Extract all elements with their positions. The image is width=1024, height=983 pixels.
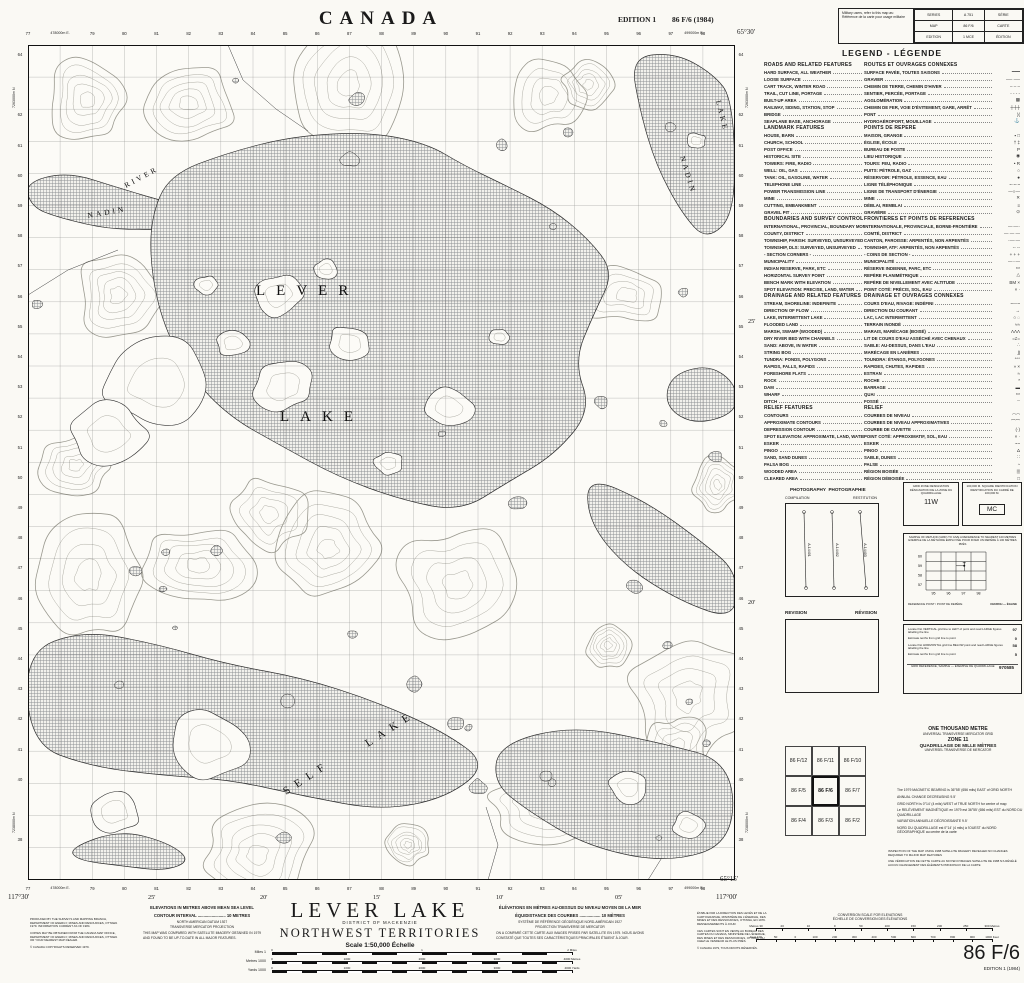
edge-label: 84	[251, 31, 256, 36]
square-id-value: MC	[979, 504, 1005, 515]
elevation-notes-en: ELEVATIONS IN METRES ABOVE MEAN SEA LEVE…	[143, 905, 261, 940]
legend-row: BRIDGEPONT)(	[764, 110, 1020, 117]
legend-symbol: Δ	[994, 448, 1020, 453]
adjacent-sheet-cell: 86 F/4	[785, 806, 812, 836]
edge-label: 05'	[615, 894, 622, 901]
legend-symbol: ∷	[994, 454, 1020, 460]
map-name-label: LEVER	[256, 283, 359, 299]
legend-symbol: -- --	[994, 245, 1020, 250]
territory-name: NORTHWEST TERRITORIES	[260, 926, 500, 941]
legend-symbol: →	[994, 308, 1020, 313]
edge-label: 81	[154, 31, 159, 36]
legend-symbol: ≈	[994, 371, 1020, 376]
edge-label: 82	[186, 31, 191, 36]
legend-row: PALSA BOGPALSE◔	[764, 460, 1020, 467]
legend-symbol: °°°	[994, 357, 1020, 362]
edge-label: 89	[411, 886, 416, 891]
legend-symbol: ∴	[994, 342, 1020, 348]
edge-label: 94	[572, 31, 577, 36]
grid-instructions: Locate first VERTICAL grid line to LEFT …	[904, 625, 1021, 663]
edge-label: 57	[18, 263, 23, 268]
adjacent-sheet-cell: 86 F/12	[785, 746, 812, 776]
legend-symbol: ·—·—	[994, 238, 1020, 243]
legend-row: DIRECTION OF FLOWDIRECTION DU COURANT→	[764, 306, 1020, 313]
legend-row: CHURCH, SCHOOLÉGLISE, ÉCOLE† ‡	[764, 138, 1020, 145]
legend-row: TANK: OIL, GASOLINE, WATERRÉSERVOIR: PÉT…	[764, 173, 1020, 180]
legend-title: LEGEND - LÉGENDE	[764, 48, 1020, 58]
legend-symbol: × ·	[994, 287, 1020, 292]
edge-label: 54	[18, 354, 23, 359]
legend-row: COUNTY, DISTRICTCOMTÉ, DISTRICT— — —	[764, 229, 1020, 236]
edge-label: 85	[283, 31, 288, 36]
military-note-fr: Référence de la carte pour usage militai…	[842, 15, 905, 19]
edge-label: 79	[90, 31, 95, 36]
edge-label: 97	[668, 31, 673, 36]
legend-row: SPOT ELEVATION: PRECISE, LAND, WATERPOIN…	[764, 285, 1020, 292]
legend-symbol: ~~	[994, 441, 1020, 446]
legend-symbol: □	[994, 476, 1020, 481]
legend-symbol: ≈≈	[994, 322, 1020, 327]
legend-row: RAPIDS, FALLS, RAPIDSRAPIDES, CHUTES, RA…	[764, 362, 1020, 369]
edge-label: 38	[739, 837, 744, 842]
legend-row: INDIAN RESERVE, PARK, ETCRÉSERVE INDIENN…	[764, 264, 1020, 271]
legend-row: LAKE, INTERMITTENT LAKELAC, LAC INTERMIT…	[764, 313, 1020, 320]
utm-block: ONE THOUSAND METRE UNIVERSAL TRANSVERSE …	[893, 726, 1023, 752]
adjacent-sheet-cell: 86 F/2	[839, 806, 866, 836]
legend-row: POWER TRANSMISSION LINELIGNE DE TRANSPOR…	[764, 187, 1020, 194]
edge-label: 79	[90, 886, 95, 891]
edge-label: 95	[604, 886, 609, 891]
edge-label: 56	[739, 294, 744, 299]
svg-text:A-14403: A-14403	[863, 543, 867, 557]
flight-lines-diagram: A-14401A-14402A-14403	[786, 504, 878, 596]
edge-label: 61	[739, 143, 744, 148]
edge-label: 51	[739, 445, 744, 450]
edge-label: 117°00'	[716, 893, 737, 901]
military-table-cell: SERIES	[915, 10, 953, 21]
legend-row: BENCH MARK WITH ELEVATIONREPÈRE DE NIVEL…	[764, 278, 1020, 285]
edge-label: 20'	[748, 599, 755, 606]
declination-line: VARIATION ANNUELLE DÉCROISSANTE 9.5'	[897, 819, 1024, 823]
legend-symbol: ▭	[994, 391, 1020, 397]
topographic-map: LEVERLAKERIVERNADINLAKENADINSELFLAKE	[28, 45, 735, 880]
square-id-box: 100,000 M. SQUARE IDENTIFICATIONIDENTIFI…	[962, 482, 1022, 526]
legend-symbol: ▭	[994, 265, 1020, 271]
military-table-cell: A 751	[953, 10, 984, 21]
edge-label: 25'	[148, 894, 155, 901]
edge-label: 59	[18, 203, 23, 208]
legend-symbol: ⊙	[994, 209, 1020, 215]
legend-row: HISTORICAL SITELIEU HISTORIQUE◉	[764, 152, 1020, 159]
legend-row: SEAPLANE BASE, ANCHORAGEHYDROAÉROPORT, M…	[764, 117, 1020, 124]
edge-label: 82	[186, 886, 191, 891]
edge-label: 43	[18, 686, 23, 691]
military-table-cell: 1 MCE	[953, 32, 984, 43]
legend-symbol: ▒	[994, 469, 1020, 474]
legend-row: HORIZONTAL SURVEY POINTREPÈRE PLANIMÉTRI…	[764, 271, 1020, 278]
edition-label: EDITION 1	[618, 15, 656, 24]
svg-text:98: 98	[977, 592, 981, 596]
military-reference-box: Military users, refer to this map as: Ré…	[838, 8, 1024, 44]
edge-label: 7238000m N	[12, 812, 16, 833]
legend-row: DEPRESSION CONTOURCOURBE DE CUVETTE(·)	[764, 425, 1020, 432]
legend-row: LOOSE SURFACEGRAVIER── ──	[764, 75, 1020, 82]
edge-label: 88	[379, 31, 384, 36]
legend-row: GRAVEL PITGRAVIÈRE⊙	[764, 208, 1020, 215]
legend-symbol: ✕	[994, 195, 1020, 201]
edge-label: 60	[18, 173, 23, 178]
declination-line: Le RELÈVEMENT MAGNÉTIQUE en 1979 est 36°…	[897, 808, 1024, 817]
military-table-cell: MAP	[915, 21, 953, 32]
legend-row: CUTTING, EMBANKMENTDÉBLAI, REMBLAI≡	[764, 201, 1020, 208]
legend-symbol: ━━━	[994, 69, 1020, 75]
legend-symbol: • R	[994, 161, 1020, 166]
edge-label: 85	[283, 886, 288, 891]
legend-row: SAND: ABOVE, IN WATERSABLE: AU-DESSUS, D…	[764, 341, 1020, 348]
legend-row: DAMBARRAGE▬	[764, 383, 1020, 390]
edge-label: 77	[26, 31, 31, 36]
edge-label: 52	[18, 414, 23, 419]
edge-label: 499000m E.	[684, 886, 703, 890]
sheet-number-big: 86 F/6	[900, 942, 1020, 965]
legend-symbol: BM ×	[994, 280, 1020, 285]
svg-text:A-14401: A-14401	[807, 543, 811, 557]
svg-text:96: 96	[947, 592, 951, 596]
legend-rows: ROADS AND RELATED FEATURESROUTES ET OUVR…	[764, 61, 1020, 481]
legend-panel: LEGEND - LÉGENDE ROADS AND RELATED FEATU…	[764, 48, 1020, 481]
edge-label: 40	[739, 777, 744, 782]
legend-symbol: ◠◠	[994, 412, 1020, 418]
map-sheet-page: CANADA EDITION 1 86 F/6 (1984) Military …	[0, 0, 1024, 983]
edge-label: 46	[739, 596, 744, 601]
edge-label: 98	[701, 31, 706, 36]
edge-label: 91	[476, 886, 481, 891]
legend-symbol: ┼┼┼	[994, 105, 1020, 110]
satellite-note: INSPECTION OF THE MAP USING 1988 SATELLI…	[888, 850, 1022, 857]
edition-note: EDITION 1 (1984)	[900, 966, 1020, 971]
legend-symbol: - - - -	[994, 91, 1020, 96]
legend-row: POST OFFICEBUREAU DE POSTEP	[764, 145, 1020, 152]
edge-label: 89	[411, 31, 416, 36]
edge-label: 49	[18, 505, 23, 510]
svg-text:A-14402: A-14402	[835, 543, 839, 557]
edge-label: 80	[122, 886, 127, 891]
edge-label: 93	[540, 31, 545, 36]
legend-row: DITCHFOSSÉ┄	[764, 397, 1020, 404]
adjacent-sheet-cell: 86 F/10	[839, 746, 866, 776]
scalebar-left-label: Yards 1000	[248, 968, 266, 972]
satellite-note: UNE VÉRIFICATION DE CETTE CARTE AU MOYEN…	[888, 860, 1022, 867]
edge-label: 81	[154, 886, 159, 891]
edge-label: 64	[18, 52, 23, 57]
edge-label: 42	[18, 716, 23, 721]
grid-example-diagram: 9596979860595857	[904, 546, 1021, 598]
legend-row: HARD SURFACE, ALL WEATHERSURFACE PAVÉE, …	[764, 68, 1020, 75]
legend-section-header: BOUNDARIES AND SURVEY CONTROLFRONTIÈRES …	[764, 215, 1020, 222]
edge-label: 7263000m N	[745, 88, 749, 109]
legend-section-header: RELIEF FEATURESRELIEF	[764, 404, 1020, 411]
legend-row: WELL: OIL, GASPUITS: PÉTROLE, GAZ○	[764, 166, 1020, 173]
svg-text:57: 57	[918, 584, 922, 588]
edge-label: 90	[443, 886, 448, 891]
edge-label: 44	[739, 656, 744, 661]
legend-row: FLOODED LANDTERRAIN INONDÉ≈≈	[764, 320, 1020, 327]
credits-en: PRODUCED BY THE SURVEYS AND MAPPING BRAN…	[30, 918, 122, 949]
legend-row: RAILWAY, SIDING, STATION, STOPCHEMIN DE …	[764, 103, 1020, 110]
legend-row: TUNDRA: PONDS, POLYGONSTOUNDRA: ÉTANGS, …	[764, 355, 1020, 362]
edge-label: 7263000m N	[12, 88, 16, 109]
revision-box	[785, 619, 879, 693]
edge-label: 54	[739, 354, 744, 359]
legend-row: STREAM, SHORELINE: INDEFINITECOURS D'EAU…	[764, 299, 1020, 306]
sheet-number-label: 86 F/6 (1984)	[672, 15, 714, 24]
edge-label: 50	[18, 475, 23, 480]
scalebar: 01000200030004000 Yards	[272, 970, 572, 973]
military-table-cell: 86 F/6	[953, 21, 984, 32]
adjacent-sheet-cell: 86 F/5	[785, 776, 812, 806]
legend-row: CART TRACK, WINTER ROADCHEMIN DE TERRE, …	[764, 82, 1020, 89]
legend-section-header: ROADS AND RELATED FEATURESROUTES ET OUVR…	[764, 61, 1020, 68]
edge-label: 45	[18, 626, 23, 631]
grid-example-box: SAMPLE OF METHOD (GRID) TO GIVE A REFERE…	[903, 533, 1022, 621]
legend-symbol: —○—	[994, 189, 1020, 194]
legend-symbol: —··—	[994, 259, 1020, 264]
scalebar: 012 Miles	[272, 952, 572, 955]
map-name-label: LAKE	[280, 409, 364, 425]
legend-row: BUILT-UP AREAAGGLOMÉRATION▩	[764, 96, 1020, 103]
grid-zone-box: GRID ZONE DESIGNATIONDÉSIGNATION DE LA Z…	[903, 482, 959, 526]
military-note: Military users, refer to this map as: Ré…	[839, 9, 914, 43]
photography-box: A-14401A-14402A-14403	[785, 503, 879, 597]
legend-row: TOWERS: FIRE, RADIOTOURS: FEU, RADIO• R	[764, 159, 1020, 166]
legend-symbol: — — —	[994, 231, 1020, 236]
sample-grid-reference: 970585	[999, 665, 1014, 670]
edge-label: 53	[18, 384, 23, 389]
legend-symbol: ○	[994, 168, 1020, 173]
legend-symbol: – – –	[994, 84, 1020, 89]
edge-label: 47	[739, 565, 744, 570]
edge-label: 91	[476, 31, 481, 36]
legend-symbol: ── ──	[994, 77, 1020, 82]
svg-text:97: 97	[962, 592, 966, 596]
legend-symbol: ┄	[994, 398, 1020, 404]
legend-row: DRY RIVER BED WITH CHANNELSLIT DE COURS …	[764, 334, 1020, 341]
legend-symbol: ⌒⌒	[994, 419, 1020, 425]
edge-label: 53	[739, 384, 744, 389]
edge-label: 7238000m N	[745, 812, 749, 833]
scalebar-left-label: Metres 1000	[246, 959, 266, 963]
edge-label: 50	[739, 475, 744, 480]
edge-label: 96	[636, 886, 641, 891]
legend-symbol: )(	[994, 112, 1020, 117]
declination-notes: The 1979 MAGNETIC BEARING is 36°55' (656…	[897, 788, 1024, 837]
edge-label: 42	[739, 716, 744, 721]
edge-label: 48	[739, 535, 744, 540]
edge-label: 77	[26, 886, 31, 891]
edge-label: 92	[508, 886, 513, 891]
edge-label: 86	[315, 886, 320, 891]
edge-label: 83	[218, 886, 223, 891]
edge-label: 48	[18, 535, 23, 540]
map-canvas: LEVERLAKERIVERNADINLAKENADINSELFLAKE	[28, 45, 735, 880]
legend-row: ESKERESKER~~	[764, 439, 1020, 446]
legend-symbol: ▪ □	[994, 133, 1020, 138]
legend-symbol: ~·~·~	[994, 182, 1020, 187]
photography-sublabels: COMPILATIONRESTITUTION	[785, 496, 877, 500]
svg-text:59: 59	[918, 565, 922, 569]
scalebar-left-label: Miles 1	[255, 950, 266, 954]
edge-label: 90	[443, 31, 448, 36]
edge-label: 25'	[748, 318, 755, 325]
legend-row: HOUSE, BARNMAISON, GRANGE▪ □	[764, 131, 1020, 138]
edge-label: 55	[18, 324, 23, 329]
edge-label: 87	[347, 31, 352, 36]
legend-symbol: ΛΛΛ	[994, 329, 1020, 334]
legend-symbol: ∫∫	[994, 350, 1020, 355]
legend-symbol: + + +	[994, 252, 1020, 257]
edge-label: 61	[18, 143, 23, 148]
edge-label: 41	[739, 747, 744, 752]
edge-label: 92	[508, 31, 513, 36]
edge-label: 499000m E.	[684, 31, 703, 35]
legend-row: TRAIL, CUT LINE, PORTAGESENTIER, PERCÉE,…	[764, 89, 1020, 96]
legend-row: WOODED AREARÉGION BOISÉE▒	[764, 467, 1020, 474]
edge-label: 49	[739, 505, 744, 510]
legend-symbol: (·)	[994, 427, 1020, 432]
map-subtitle: DISTRICT OF MACKENZIE	[260, 920, 500, 925]
edge-label: 62	[18, 112, 23, 117]
edge-label: 57	[739, 263, 744, 268]
military-table-cell: ÉDITION	[984, 32, 1022, 43]
photography-title: PHOTOGRAPHY PHOTOGRAPHIE	[790, 487, 866, 492]
legend-row: CLEARED AREARÉGION DÉBOISÉE□	[764, 474, 1020, 481]
edge-label: 59	[739, 203, 744, 208]
legend-symbol: ~—~	[994, 301, 1020, 306]
declination-line: GRID NORTH is 0°14' (4 mils) WEST of TRU…	[897, 802, 1024, 806]
legend-symbol: ◉	[994, 153, 1020, 159]
military-table-cell: EDITION	[915, 32, 953, 43]
edge-label: 44	[18, 656, 23, 661]
edge-label: 62	[739, 112, 744, 117]
revision-labels: REVISIONRÉVISION	[785, 610, 877, 615]
edge-label: 87	[347, 886, 352, 891]
edge-label: 83	[218, 31, 223, 36]
edge-label: 84	[251, 886, 256, 891]
adjacent-sheet-cell: 86 F/7	[839, 776, 866, 806]
edge-label: 51	[18, 445, 23, 450]
legend-symbol: —·—·	[994, 224, 1020, 229]
edge-label: 60	[739, 173, 744, 178]
svg-text:95: 95	[932, 592, 936, 596]
edge-label: 117°30'	[8, 893, 29, 901]
legend-row: INTERNATIONAL, PROVINCIAL, BOUNDARY MONU…	[764, 222, 1020, 229]
edge-label: 52	[739, 414, 744, 419]
legend-row: SAND, SAND DUNESSABLE, DUNES∷	[764, 453, 1020, 460]
adjacent-sheets-index: 86 F/1286 F/1186 F/1086 F/586 F/686 F/78…	[785, 746, 866, 836]
edge-label: 58	[739, 233, 744, 238]
legend-row: PINGOPINGOΔ	[764, 446, 1020, 453]
edge-label: 86	[315, 31, 320, 36]
legend-row: FORESHORE FLATSESTRAN≈	[764, 369, 1020, 376]
declination-line: ANNUAL CHANGE DECREASING 9.5'	[897, 795, 1024, 799]
legend-row: SPOT ELEVATION: APPROXIMATE, LAND, WATER…	[764, 432, 1020, 439]
conversion-ruler: Metres 302010050100150200250300 Metres	[756, 928, 992, 932]
legend-row: ROCKROCHE*	[764, 376, 1020, 383]
scale-label: Scale 1:50,000 Échelle	[260, 942, 500, 949]
edge-label: 88	[379, 886, 384, 891]
legend-row: WHARFQUAI▭	[764, 390, 1020, 397]
legend-symbol: ▩	[994, 97, 1020, 103]
legend-section-header: DRAINAGE AND RELATED FEATURESDRAINAGE ET…	[764, 292, 1020, 299]
edge-label: 97	[668, 886, 673, 891]
legend-row: MUNICIPALITYMUNICIPALITÉ—··—	[764, 257, 1020, 264]
legend-symbol: *	[994, 378, 1020, 383]
legend-symbol: † ‡	[994, 140, 1020, 145]
scalebar: 01000200030004000 Metres	[272, 961, 572, 964]
edge-label: 80	[122, 31, 127, 36]
legend-row: MINEMINE✕	[764, 194, 1020, 201]
legend-symbol: ●	[994, 175, 1020, 180]
military-note-en: Military users, refer to this map as:	[842, 11, 894, 15]
military-table-cell: CARTE	[984, 21, 1022, 32]
conversion-scale-title: CONVERSION SCALE FOR ELEVATIONSÉCHELLE D…	[742, 913, 998, 921]
legend-symbol: ◔	[994, 462, 1020, 467]
legend-symbol: ▬	[994, 385, 1020, 390]
legend-row: APPROXIMATE CONTOURSCOURBES DE NIVEAU AP…	[764, 418, 1020, 425]
legend-symbol: ○ ◌	[994, 315, 1020, 320]
legend-symbol: » ×	[994, 364, 1020, 369]
adjacent-sheet-cell: 86 F/3	[812, 806, 839, 836]
legend-row: TELEPHONE LINELIGNE TÉLÉPHONIQUE~·~·~	[764, 180, 1020, 187]
edge-label: 45	[739, 626, 744, 631]
edge-label: 40	[18, 777, 23, 782]
edge-label: 64	[739, 52, 744, 57]
legend-symbol: P	[994, 147, 1020, 152]
declination-line: NORD DU QUADRILLAGE est 0°14' (4 mils) à…	[897, 826, 1024, 835]
edge-label: 95	[604, 31, 609, 36]
grid-instructions-box: Locate first VERTICAL grid line to LEFT …	[903, 624, 1022, 694]
legend-symbol: × ·	[994, 434, 1020, 439]
grid-zone-value: 11W	[904, 499, 958, 506]
edge-label: 93	[540, 886, 545, 891]
edge-label: 478000m E.	[50, 31, 69, 35]
edge-label: 55	[739, 324, 744, 329]
legend-section-header: LANDMARK FEATURESPOINTS DE REPÈRE	[764, 124, 1020, 131]
legend-symbol: =≠=	[994, 336, 1020, 341]
edge-label: 43	[739, 686, 744, 691]
edge-label: 56	[18, 294, 23, 299]
legend-row: STRING BOGMARÉCAGE EN LANIÈRES∫∫	[764, 348, 1020, 355]
instruction-step: Estimate tenths from grid line to point0	[908, 637, 1017, 642]
legend-symbol: ⚓	[994, 118, 1020, 124]
edge-label: 47	[18, 565, 23, 570]
elevation-notes-fr: ÉLÉVATIONS EN MÈTRES AU-DESSUS DU NIVEAU…	[496, 905, 644, 940]
legend-symbol: △	[994, 272, 1020, 278]
edge-label: 96	[636, 31, 641, 36]
legend-row: CONTOURSCOURBES DE NIVEAU◠◠	[764, 411, 1020, 418]
military-table-cell: SÉRIE	[984, 10, 1022, 21]
satellite-notes: INSPECTION OF THE MAP USING 1988 SATELLI…	[888, 850, 1022, 871]
military-table: SERIESA 751SÉRIEMAP86 F/6CARTEEDITION1 M…	[914, 9, 1023, 43]
adjacent-sheet-cell: 86 F/6	[812, 776, 839, 806]
adjacent-sheet-cell: 86 F/11	[812, 746, 839, 776]
legend-symbol: ≡	[994, 203, 1020, 208]
reference-point-value: CHURCH — ÉGLISE	[990, 603, 1017, 606]
edge-label: 58	[18, 233, 23, 238]
svg-text:60: 60	[918, 555, 922, 559]
edge-label: 38	[18, 837, 23, 842]
edge-label: 46	[18, 596, 23, 601]
